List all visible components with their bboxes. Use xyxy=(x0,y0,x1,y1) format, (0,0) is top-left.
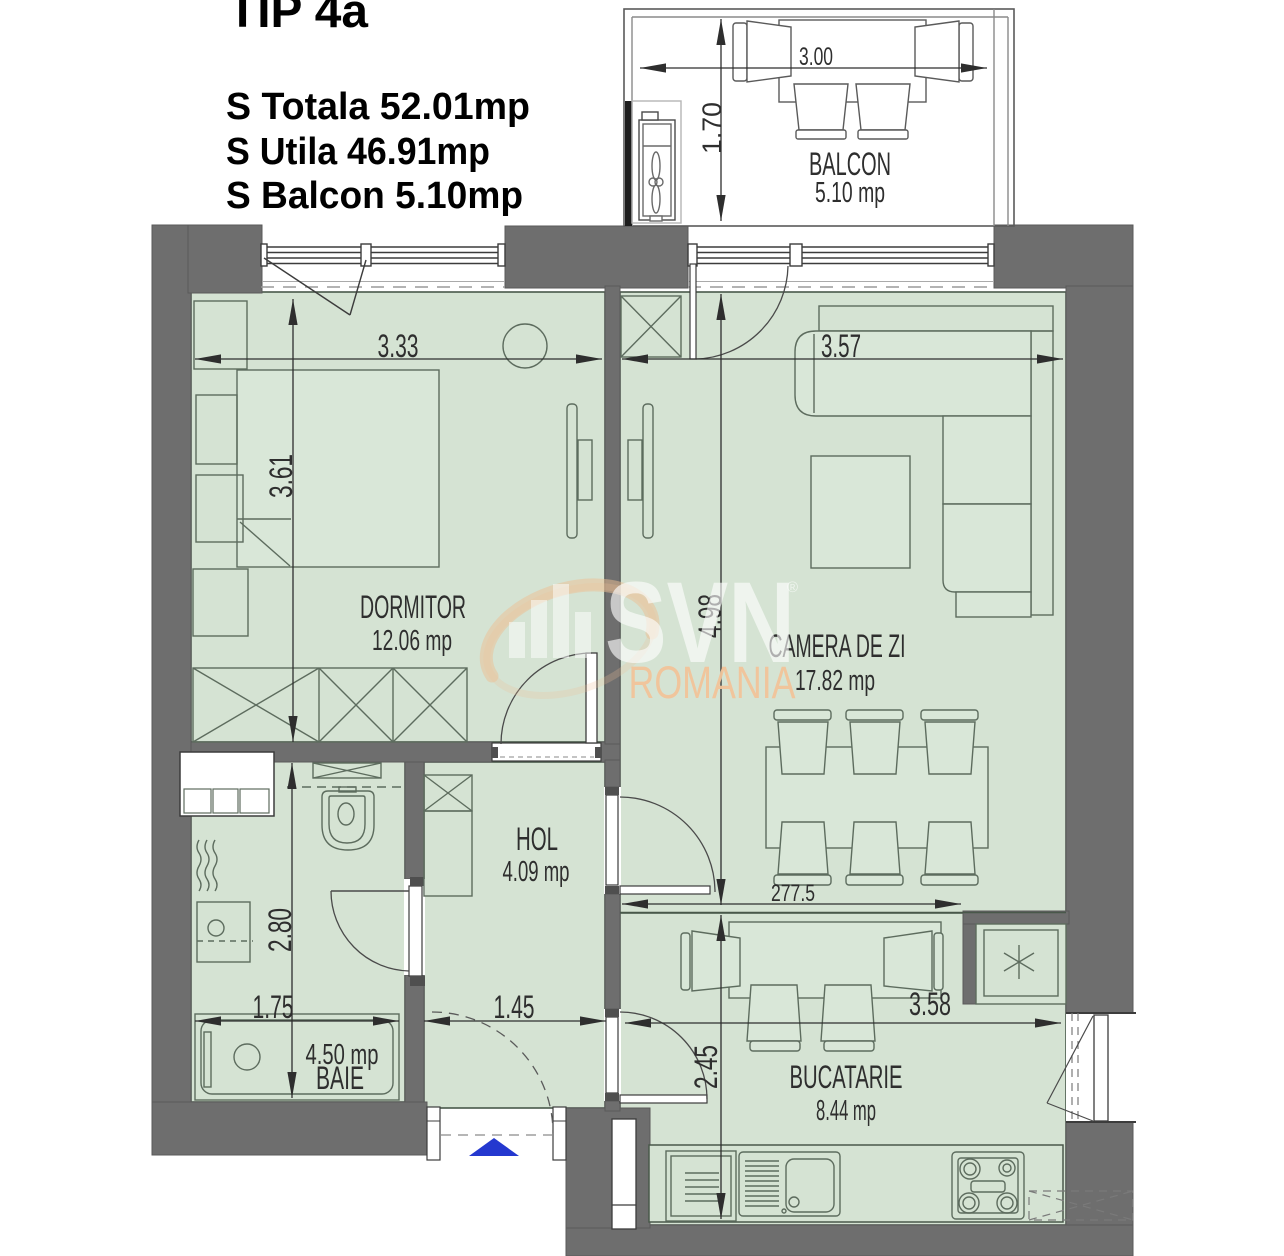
svg-text:1.75: 1.75 xyxy=(253,989,294,1025)
svg-text:S Totala 52.01mp: S Totala 52.01mp xyxy=(226,86,530,128)
svg-text:ROMANIA: ROMANIA xyxy=(629,657,796,708)
svg-text:17.82 mp: 17.82 mp xyxy=(795,665,875,697)
svg-text:3.57: 3.57 xyxy=(821,328,861,364)
svg-text:S Balcon 5.10mp: S Balcon 5.10mp xyxy=(226,175,523,217)
svg-text:1.70: 1.70 xyxy=(697,102,727,154)
svg-text:3.61: 3.61 xyxy=(263,454,299,498)
svg-text:4.09 mp: 4.09 mp xyxy=(503,856,570,888)
svg-text:®: ® xyxy=(787,579,798,596)
svg-text:3.00: 3.00 xyxy=(799,43,833,71)
svg-text:12.06 mp: 12.06 mp xyxy=(372,625,452,657)
svg-text:3.58: 3.58 xyxy=(909,986,951,1022)
svg-text:8.44 mp: 8.44 mp xyxy=(816,1095,876,1127)
svg-text:BAIE: BAIE xyxy=(316,1060,364,1096)
svg-text:5.10 mp: 5.10 mp xyxy=(815,177,885,209)
svg-text:1.45: 1.45 xyxy=(494,989,535,1025)
svg-text:BUCATARIE: BUCATARIE xyxy=(790,1059,903,1095)
svg-text:S Utila 46.91mp: S Utila 46.91mp xyxy=(226,131,490,173)
svg-text:3.33: 3.33 xyxy=(378,328,419,364)
svg-text:277.5: 277.5 xyxy=(771,880,815,907)
svg-text:DORMITOR: DORMITOR xyxy=(360,589,466,625)
svg-text:2.45: 2.45 xyxy=(688,1045,724,1089)
svg-text:HOL: HOL xyxy=(516,821,558,857)
svg-text:TIP 4a: TIP 4a xyxy=(228,0,369,37)
svg-text:2.80: 2.80 xyxy=(262,908,298,952)
